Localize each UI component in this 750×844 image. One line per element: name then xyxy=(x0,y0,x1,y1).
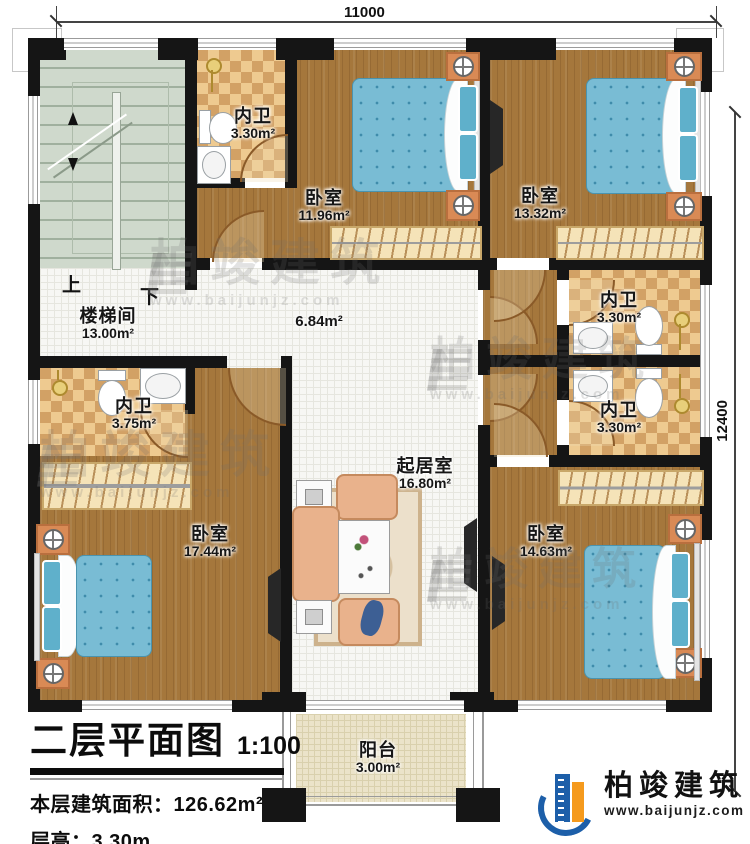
room-area: 17.44m² xyxy=(166,544,254,560)
room-area: 3.30m² xyxy=(577,420,661,436)
balcony-column xyxy=(456,788,500,822)
room-label-bed-bottom-right: 卧室 14.63m² xyxy=(501,524,591,560)
sink-basin xyxy=(202,151,226,179)
room-area: 13.00m² xyxy=(60,326,156,342)
lamp-icon xyxy=(675,519,696,540)
pillow xyxy=(678,86,698,134)
company-logo: 柏竣建筑 www.baijunjz.com xyxy=(538,770,745,834)
stair-down-label: 下 xyxy=(140,282,159,309)
nightstand xyxy=(666,52,702,81)
sink-basin xyxy=(578,375,608,397)
room-area: 3.30m² xyxy=(213,126,293,142)
pillow xyxy=(42,560,62,606)
room-name: 卧室 xyxy=(501,524,591,544)
company-name: 柏竣建筑 xyxy=(604,770,745,803)
room-area: 14.63m² xyxy=(501,544,591,560)
company-logo-icon xyxy=(538,770,596,834)
floor-area-value: 126.62m² xyxy=(174,794,264,816)
room-label-bed-top-left: 卧室 11.96m² xyxy=(282,188,366,224)
tv xyxy=(490,100,503,174)
window xyxy=(64,38,158,50)
stair-arrow-up xyxy=(68,112,78,125)
floor-height-label: 层高： xyxy=(30,831,92,844)
lamp-icon xyxy=(43,529,64,550)
headboard xyxy=(34,553,40,661)
floor-area-line: 本层建筑面积：126.62m² xyxy=(30,788,301,817)
window xyxy=(700,92,712,196)
sink xyxy=(197,146,231,184)
room-name: 楼梯间 xyxy=(60,306,156,326)
pillow xyxy=(458,133,478,181)
wall-bathleft-right xyxy=(185,368,195,414)
nightstand xyxy=(36,524,70,555)
room-area: 11.96m² xyxy=(282,208,366,224)
wall-corridor xyxy=(197,258,210,270)
window xyxy=(556,38,674,50)
room-area: 3.00m² xyxy=(338,760,418,776)
room-label-bed-bottom-left: 卧室 17.44m² xyxy=(166,524,254,560)
shower-head xyxy=(206,58,222,74)
window xyxy=(28,380,40,444)
title-block: 二层平面图 1:100 本层建筑面积：126.62m² 层高：3.30m xyxy=(30,710,301,844)
stair-up-label: 上 xyxy=(62,270,81,297)
wall-bathleft-top xyxy=(28,356,227,368)
wall-pillar xyxy=(28,38,66,60)
wall-minihall-left xyxy=(478,340,490,375)
dimension-line-right xyxy=(734,112,736,792)
logo-building-blue-icon xyxy=(555,774,570,822)
room-name: 卧室 xyxy=(166,524,254,544)
sink-basin xyxy=(578,327,608,349)
shower-hose xyxy=(679,374,681,398)
room-label-bath-right-upper: 内卫 3.30m² xyxy=(577,290,661,326)
lamp-icon xyxy=(453,195,474,216)
room-name: 内卫 xyxy=(91,396,177,416)
room-label-bed-top-right: 卧室 13.32m² xyxy=(496,186,584,222)
room-name: 阳台 xyxy=(338,740,418,760)
tv xyxy=(492,556,505,630)
wall-bed4-left xyxy=(478,425,490,712)
room-label-stairwell: 楼梯间 13.00m² xyxy=(60,306,156,342)
window xyxy=(700,285,712,437)
nightstand xyxy=(36,658,70,689)
room-area: 6.84m² xyxy=(283,314,355,331)
sofa xyxy=(292,506,340,602)
side-table xyxy=(296,600,332,634)
pillow xyxy=(670,600,690,648)
room-label-living: 起居室 16.80m² xyxy=(380,456,470,492)
headboard xyxy=(694,543,700,681)
lamp-icon xyxy=(674,196,695,217)
lamp-icon xyxy=(675,653,696,674)
pillow xyxy=(678,134,698,182)
room-name: 内卫 xyxy=(577,290,661,310)
nightstand xyxy=(446,190,480,221)
pillow xyxy=(670,552,690,600)
shower-head xyxy=(674,398,690,414)
shower-hose xyxy=(211,70,213,92)
dimension-top-value: 11000 xyxy=(340,4,389,21)
room-area: 3.75m² xyxy=(91,416,177,432)
title-underline-thin xyxy=(30,778,284,780)
wall-stair-right xyxy=(185,38,197,290)
floor-height-line: 层高：3.30m xyxy=(30,825,301,844)
dimension-right-value: 12400 xyxy=(714,396,731,446)
room-area: 16.80m² xyxy=(380,476,470,492)
nightstand xyxy=(668,514,702,544)
stair-arrow-down xyxy=(68,158,78,171)
window xyxy=(518,700,666,712)
wall-minihall-left xyxy=(478,270,490,290)
lamp-icon xyxy=(674,56,695,77)
wall-bathright-divider xyxy=(490,355,712,367)
wardrobe xyxy=(330,226,482,260)
floor-plan-canvas: 上 下 xyxy=(0,0,750,844)
tv xyxy=(268,568,281,642)
room-label-bath-left: 内卫 3.75m² xyxy=(91,396,177,432)
room-label-hallway: 6.84m² xyxy=(283,314,355,331)
tv xyxy=(464,518,477,592)
room-name: 卧室 xyxy=(282,188,366,208)
wall-bathright-left xyxy=(557,267,569,280)
wardrobe xyxy=(556,226,704,260)
room-label-bath-right-lower: 内卫 3.30m² xyxy=(577,400,661,436)
shower-head xyxy=(674,312,690,328)
pillow xyxy=(42,606,62,652)
sink xyxy=(573,322,613,354)
title-underline xyxy=(30,768,284,775)
side-table-top xyxy=(305,489,323,505)
room-name: 起居室 xyxy=(380,456,470,476)
wall-bed3-top-stub xyxy=(281,356,292,368)
shower-hose xyxy=(57,370,59,380)
coffee-table xyxy=(338,520,390,594)
side-table-top xyxy=(305,609,323,625)
wardrobe xyxy=(42,462,192,510)
pillow xyxy=(458,85,478,133)
floor-area-label: 本层建筑面积： xyxy=(30,794,174,816)
shower-hose xyxy=(679,324,681,350)
window xyxy=(700,540,712,658)
sink xyxy=(573,370,613,402)
wardrobe xyxy=(558,470,704,506)
drawing-scale: 1:100 xyxy=(237,732,301,764)
room-name: 内卫 xyxy=(577,400,661,420)
balcony-column xyxy=(262,692,306,712)
room-name: 内卫 xyxy=(213,106,293,126)
logo-building-orange-icon xyxy=(572,782,584,822)
wall-bathright-bottom xyxy=(549,455,712,467)
dimension-line-top xyxy=(56,21,716,23)
nightstand xyxy=(666,192,702,221)
room-area: 3.30m² xyxy=(577,310,661,326)
window xyxy=(334,38,466,50)
room-name: 卧室 xyxy=(496,186,584,206)
window xyxy=(198,38,276,50)
window xyxy=(28,96,40,204)
floor-height-value: 3.30m xyxy=(92,831,151,844)
lamp-icon xyxy=(43,663,64,684)
company-url: www.baijunjz.com xyxy=(604,803,745,818)
room-label-balcony: 阳台 3.00m² xyxy=(338,740,418,776)
room-area: 13.32m² xyxy=(496,206,584,222)
shower-head xyxy=(52,380,68,396)
bed xyxy=(76,555,152,657)
lamp-icon xyxy=(453,56,474,77)
room-label-bath-top: 内卫 3.30m² xyxy=(213,106,293,142)
wall-bathright-left xyxy=(557,445,569,455)
nightstand xyxy=(446,52,480,81)
balcony-sliding-door xyxy=(306,700,464,712)
page-title: 二层平面图 xyxy=(30,710,225,764)
